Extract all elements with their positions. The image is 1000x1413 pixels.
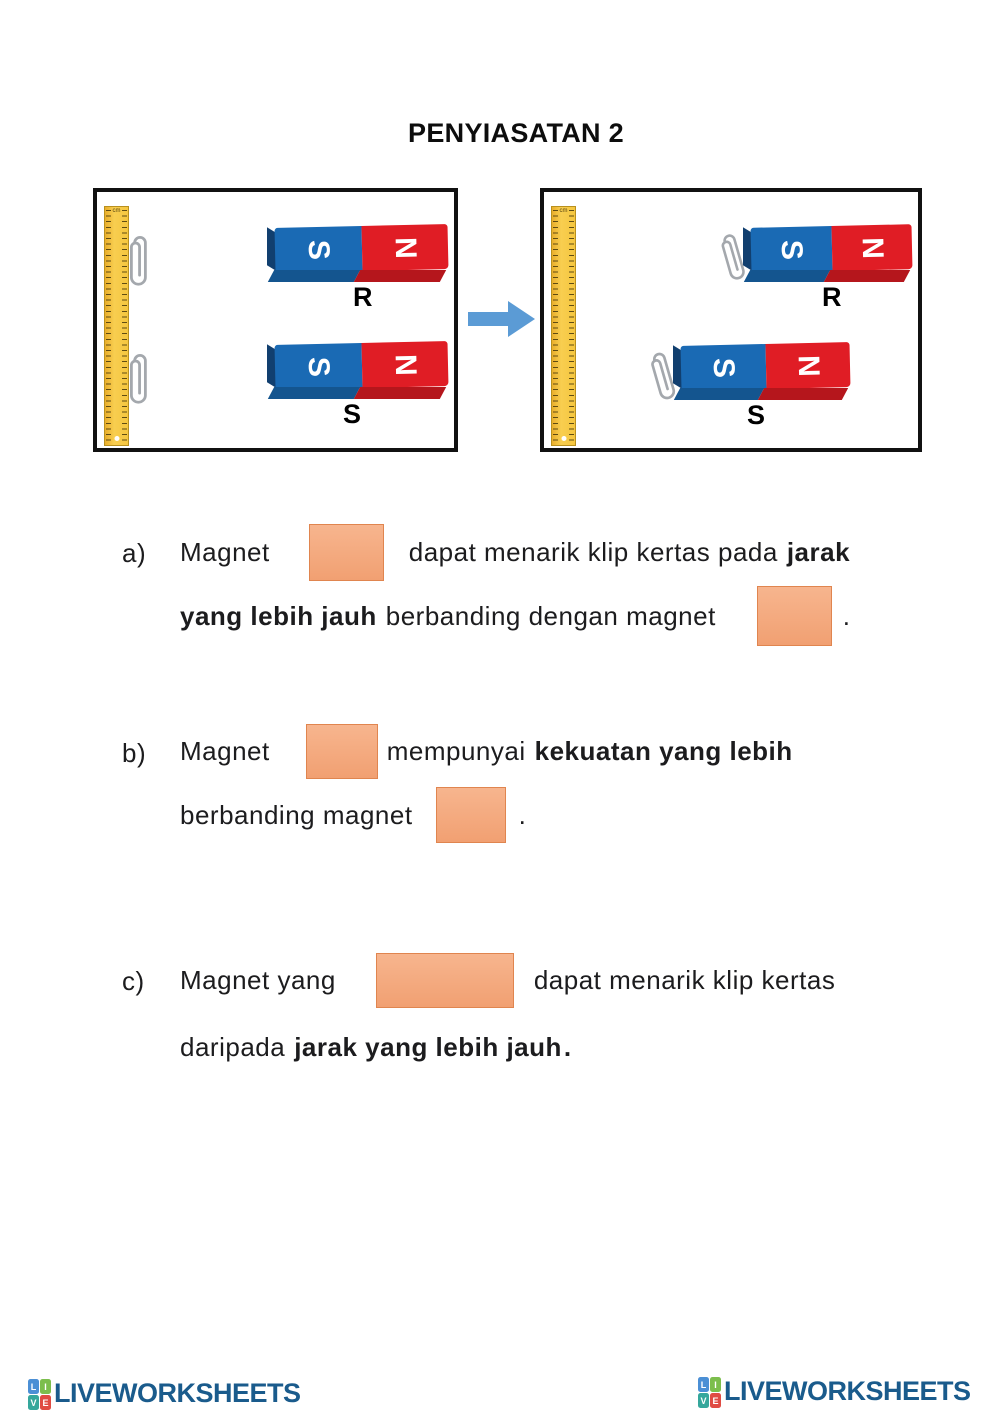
page-title: PENYIASATAN 2 <box>16 118 1000 149</box>
question-text: berbanding magnet <box>180 800 413 831</box>
question-a-line2: yang lebih jauh berbanding dengan magnet… <box>180 585 851 647</box>
bar-magnet-s: S N <box>672 344 854 400</box>
ruler-unit-label: cm <box>105 208 128 214</box>
question-text-bold: kekuatan yang lebih <box>535 736 793 767</box>
question-b-label: b) <box>122 738 146 769</box>
magnet-south-pole: S <box>751 226 833 273</box>
liveworksheets-grid-icon: L I V E <box>28 1379 51 1410</box>
magnet-north-pole: N <box>765 342 850 389</box>
magnet-north-pole: N <box>361 224 448 271</box>
question-text: berbanding dengan magnet <box>386 601 716 632</box>
answer-box[interactable] <box>309 524 384 581</box>
question-c-label: c) <box>122 966 145 997</box>
question-a-label: a) <box>122 538 146 569</box>
ruler-hole <box>561 436 566 441</box>
liveworksheets-grid-icon: L I V E <box>698 1377 721 1408</box>
paperclip-icon <box>126 224 154 296</box>
question-text-bold: . <box>564 1032 572 1063</box>
magnet-label-s: S <box>747 400 765 431</box>
right-arrow-icon <box>468 299 536 339</box>
magnet-label-r: R <box>822 282 842 313</box>
magnet-south-pole: S <box>275 226 362 273</box>
question-text: . <box>519 800 527 831</box>
question-text: . <box>843 601 851 632</box>
answer-box[interactable] <box>436 787 506 843</box>
ruler-unit-label: cm <box>552 208 575 214</box>
liveworksheets-wordmark: LIVEWORKSHEETS <box>724 1374 971 1408</box>
question-text-bold: jarak <box>787 537 850 568</box>
bar-magnet-s: S N <box>266 343 452 399</box>
question-text: Magnet <box>180 537 270 568</box>
magnet-label-r: R <box>353 282 373 313</box>
magnet-label-s: S <box>343 399 361 430</box>
question-b-line2: berbanding magnet . <box>180 786 526 844</box>
answer-box[interactable] <box>757 586 832 646</box>
question-b-line1: Magnet mempunyai kekuatan yang lebih <box>180 722 793 780</box>
question-text-bold: jarak yang lebih jauh <box>294 1032 562 1063</box>
magnet-north-pole: N <box>831 224 913 271</box>
question-text: daripada <box>180 1032 285 1063</box>
paperclip-icon <box>126 342 154 414</box>
answer-box[interactable] <box>306 724 378 779</box>
magnet-south-pole: S <box>681 344 766 391</box>
question-text: mempunyai <box>387 736 526 767</box>
question-text-bold: yang lebih jauh <box>180 601 377 632</box>
diagram-panel-after: cm S N R S <box>540 188 922 452</box>
bar-magnet-r: S N <box>742 226 916 282</box>
question-c-line1: Magnet yang dapat menarik klip kertas <box>180 952 835 1008</box>
question-text: Magnet <box>180 736 270 767</box>
liveworksheets-wordmark: LIVEWORKSHEETS <box>54 1376 301 1410</box>
magnet-north-pole: N <box>361 341 448 388</box>
question-text: dapat menarik klip kertas <box>534 965 836 996</box>
ruler: cm <box>551 206 576 446</box>
question-text: Magnet yang <box>180 965 336 996</box>
worksheet-page: PENYIASATAN 2 cm S N R <box>0 0 1000 1413</box>
liveworksheets-logo: L I V E LIVEWORKSHEETS <box>698 1374 971 1408</box>
magnet-south-pole: S <box>275 343 362 390</box>
question-c-line2: daripada jarak yang lebih jauh . <box>180 1032 572 1063</box>
question-text: dapat menarik klip kertas pada <box>409 537 778 568</box>
bar-magnet-r: S N <box>266 226 452 282</box>
liveworksheets-logo: L I V E LIVEWORKSHEETS <box>28 1376 301 1410</box>
question-a-line1: Magnet dapat menarik klip kertas pada ja… <box>180 522 850 582</box>
answer-box[interactable] <box>376 953 514 1008</box>
diagram-panel-before: cm S N R S <box>93 188 458 452</box>
ruler-hole <box>114 436 119 441</box>
